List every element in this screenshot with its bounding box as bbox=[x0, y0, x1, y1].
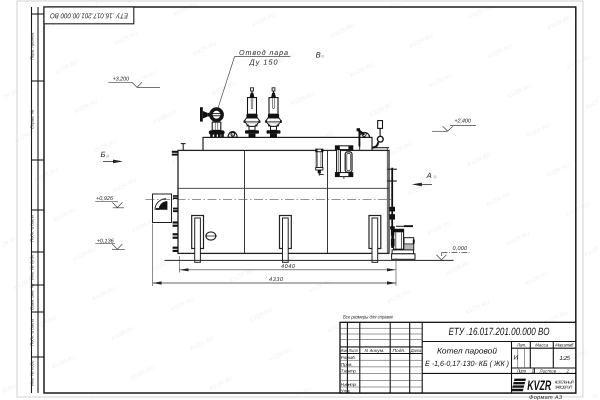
svg-text:0,000: 0,000 bbox=[453, 246, 468, 252]
svg-text:+0,926: +0,926 bbox=[96, 196, 114, 202]
svg-text:Изм: Изм bbox=[341, 348, 347, 353]
svg-text:Масса: Масса bbox=[535, 343, 549, 348]
svg-text:+0,136: +0,136 bbox=[97, 238, 115, 244]
svg-text:Масштаб: Масштаб bbox=[555, 343, 574, 348]
svg-text:N докум.: N докум. bbox=[365, 348, 385, 353]
svg-text:Взам. инв. №: Взам. инв. № bbox=[29, 283, 34, 310]
svg-text:Инв. № подл.: Инв. № подл. bbox=[29, 359, 34, 386]
svg-text:1:25: 1:25 bbox=[560, 355, 571, 362]
svg-text:Подп. и дата: Подп. и дата bbox=[29, 214, 34, 242]
svg-text:ЕТУ .16.017.201.00.000 ВО: ЕТУ .16.017.201.00.000 ВО bbox=[50, 12, 128, 19]
svg-text:2: 2 bbox=[566, 368, 570, 373]
svg-text:Инв. № дубл.: Инв. № дубл. bbox=[29, 254, 34, 280]
svg-text:ЗАВОД РЭП: ЗАВОД РЭП bbox=[555, 384, 573, 389]
svg-text:Подп. и дата: Подп. и дата bbox=[29, 318, 34, 346]
svg-text:Листов: Листов bbox=[539, 368, 557, 373]
svg-text:ЕТУ .16.017.201.00.000 ВО: ЕТУ .16.017.201.00.000 ВО bbox=[449, 326, 550, 338]
svg-text:+2,400: +2,400 bbox=[454, 119, 471, 125]
svg-text:+3,200: +3,200 bbox=[113, 77, 130, 83]
svg-text:Формат А3: Формат А3 bbox=[529, 395, 563, 400]
svg-text:Е -1,6-0,17-130- КБ ( ЖК ): Е -1,6-0,17-130- КБ ( ЖК ) bbox=[425, 359, 509, 368]
svg-text:А: А bbox=[426, 171, 432, 180]
svg-text:Котел паровой: Котел паровой bbox=[437, 347, 498, 356]
svg-text:Утв.: Утв. bbox=[341, 388, 351, 393]
svg-text:Подп.: Подп. bbox=[393, 348, 406, 353]
svg-text:И: И bbox=[514, 354, 519, 361]
svg-text:Пров.: Пров. bbox=[341, 362, 353, 367]
svg-text:KVZR: KVZR bbox=[527, 378, 551, 393]
svg-text:Отвод пара: Отвод пара bbox=[239, 48, 288, 57]
svg-text:Дата: Дата bbox=[410, 348, 422, 353]
svg-text:Перв. примен.: Перв. примен. bbox=[29, 31, 34, 60]
svg-text:Все размеры для справок: Все размеры для справок bbox=[343, 314, 394, 320]
svg-text:Лит.: Лит. bbox=[516, 343, 526, 348]
svg-text:Разраб.: Разраб. bbox=[341, 355, 356, 360]
svg-text:Н.контр.: Н.контр. bbox=[341, 382, 357, 387]
svg-text:Лист: Лист bbox=[348, 348, 359, 353]
svg-text:Ду 150: Ду 150 bbox=[249, 58, 278, 67]
svg-text:4040: 4040 bbox=[281, 264, 296, 270]
svg-text:Т.контр.: Т.контр. bbox=[341, 369, 357, 374]
svg-text:Б: Б bbox=[101, 150, 106, 159]
svg-text:В: В bbox=[316, 50, 321, 59]
svg-text:Лист: Лист bbox=[516, 368, 527, 373]
svg-text:4330: 4330 bbox=[269, 277, 284, 283]
svg-text:Справ. №: Справ. № bbox=[29, 109, 34, 129]
